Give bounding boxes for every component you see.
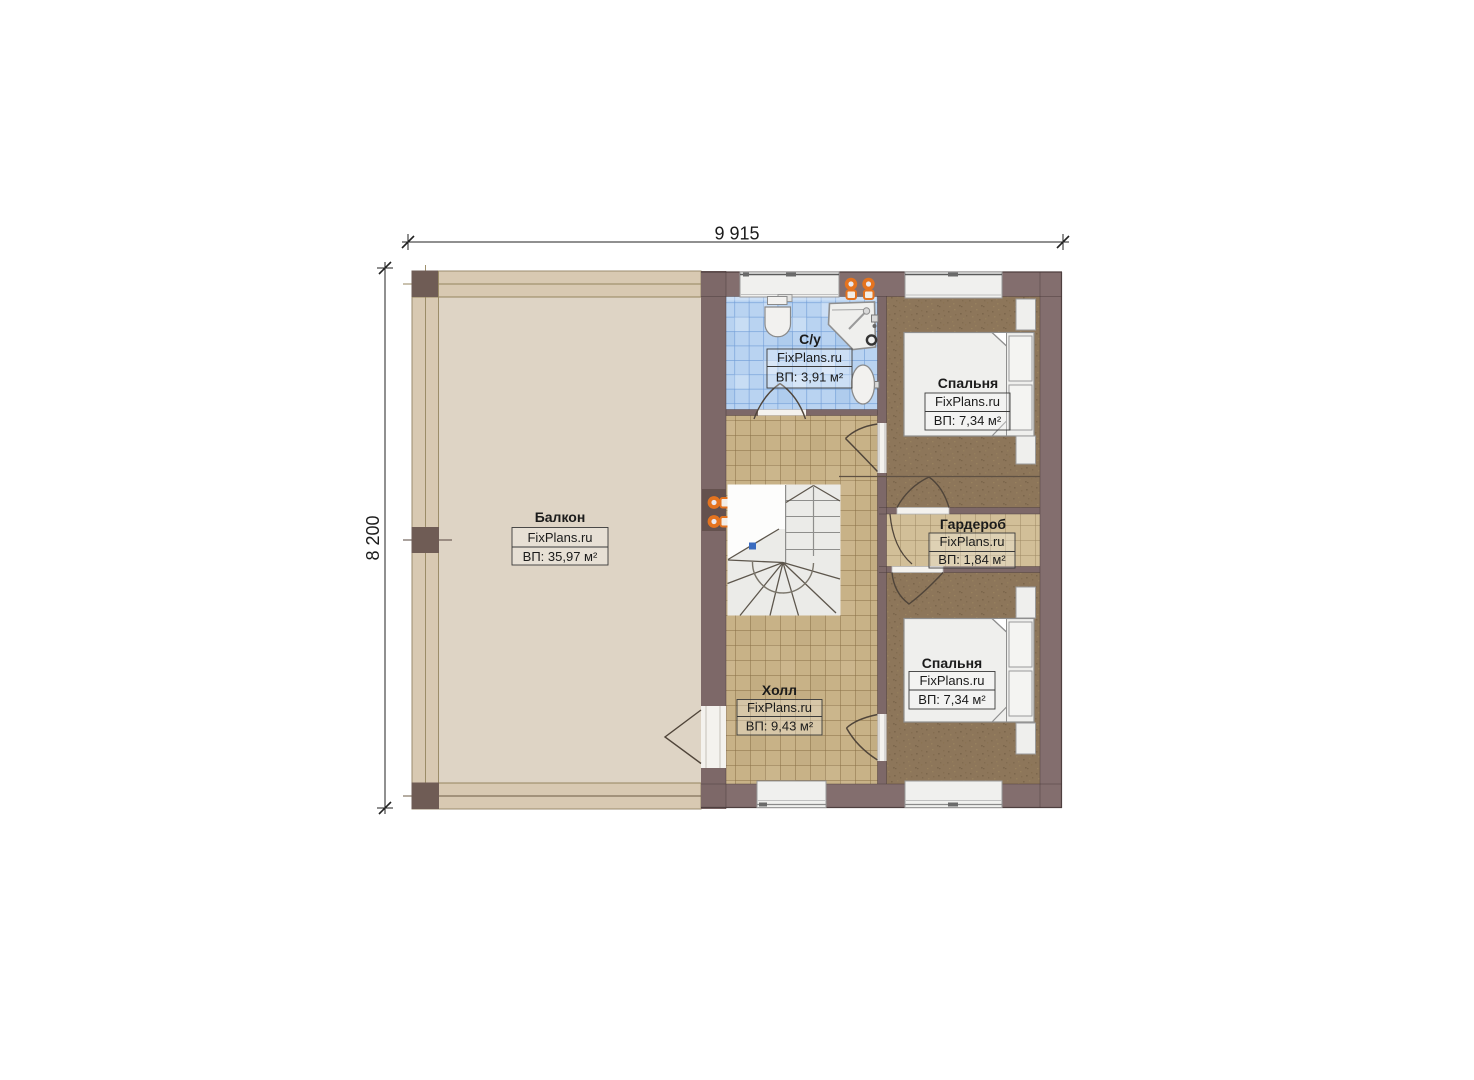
svg-text:Гардероб: Гардероб xyxy=(940,516,1007,532)
svg-text:8 200: 8 200 xyxy=(363,515,383,560)
svg-text:FixPlans.ru: FixPlans.ru xyxy=(919,673,984,688)
svg-text:FixPlans.ru: FixPlans.ru xyxy=(527,530,592,545)
svg-text:ВП: 9,43 м²: ВП: 9,43 м² xyxy=(746,719,814,734)
svg-text:ВП: 35,97 м²: ВП: 35,97 м² xyxy=(523,549,598,564)
svg-text:ВП: 3,91 м²: ВП: 3,91 м² xyxy=(776,370,844,385)
svg-text:Спальня: Спальня xyxy=(922,655,982,671)
svg-text:ВП: 7,34 м²: ВП: 7,34 м² xyxy=(918,692,986,707)
svg-text:Балкон: Балкон xyxy=(535,509,586,525)
svg-text:FixPlans.ru: FixPlans.ru xyxy=(935,394,1000,409)
svg-text:Спальня: Спальня xyxy=(938,375,998,391)
svg-text:FixPlans.ru: FixPlans.ru xyxy=(939,534,1004,549)
svg-text:ВП: 7,34 м²: ВП: 7,34 м² xyxy=(934,413,1002,428)
svg-text:9 915: 9 915 xyxy=(714,224,759,244)
svg-text:Холл: Холл xyxy=(762,682,797,698)
svg-text:ВП: 1,84 м²: ВП: 1,84 м² xyxy=(938,552,1006,567)
svg-text:FixPlans.ru: FixPlans.ru xyxy=(777,350,842,365)
svg-text:С/у: С/у xyxy=(799,331,821,347)
svg-text:FixPlans.ru: FixPlans.ru xyxy=(747,700,812,715)
